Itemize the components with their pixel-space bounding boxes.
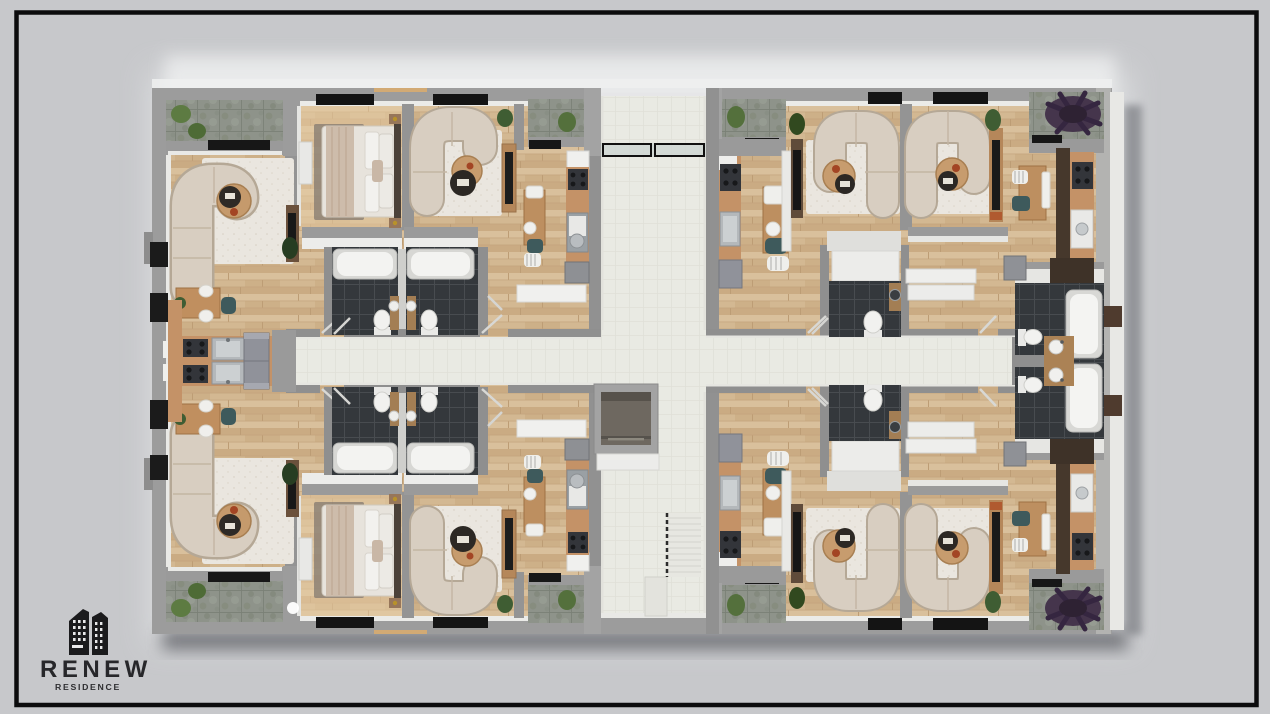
svg-text:RESIDENCE: RESIDENCE	[55, 682, 121, 692]
svg-text:RENEW: RENEW	[40, 656, 152, 683]
